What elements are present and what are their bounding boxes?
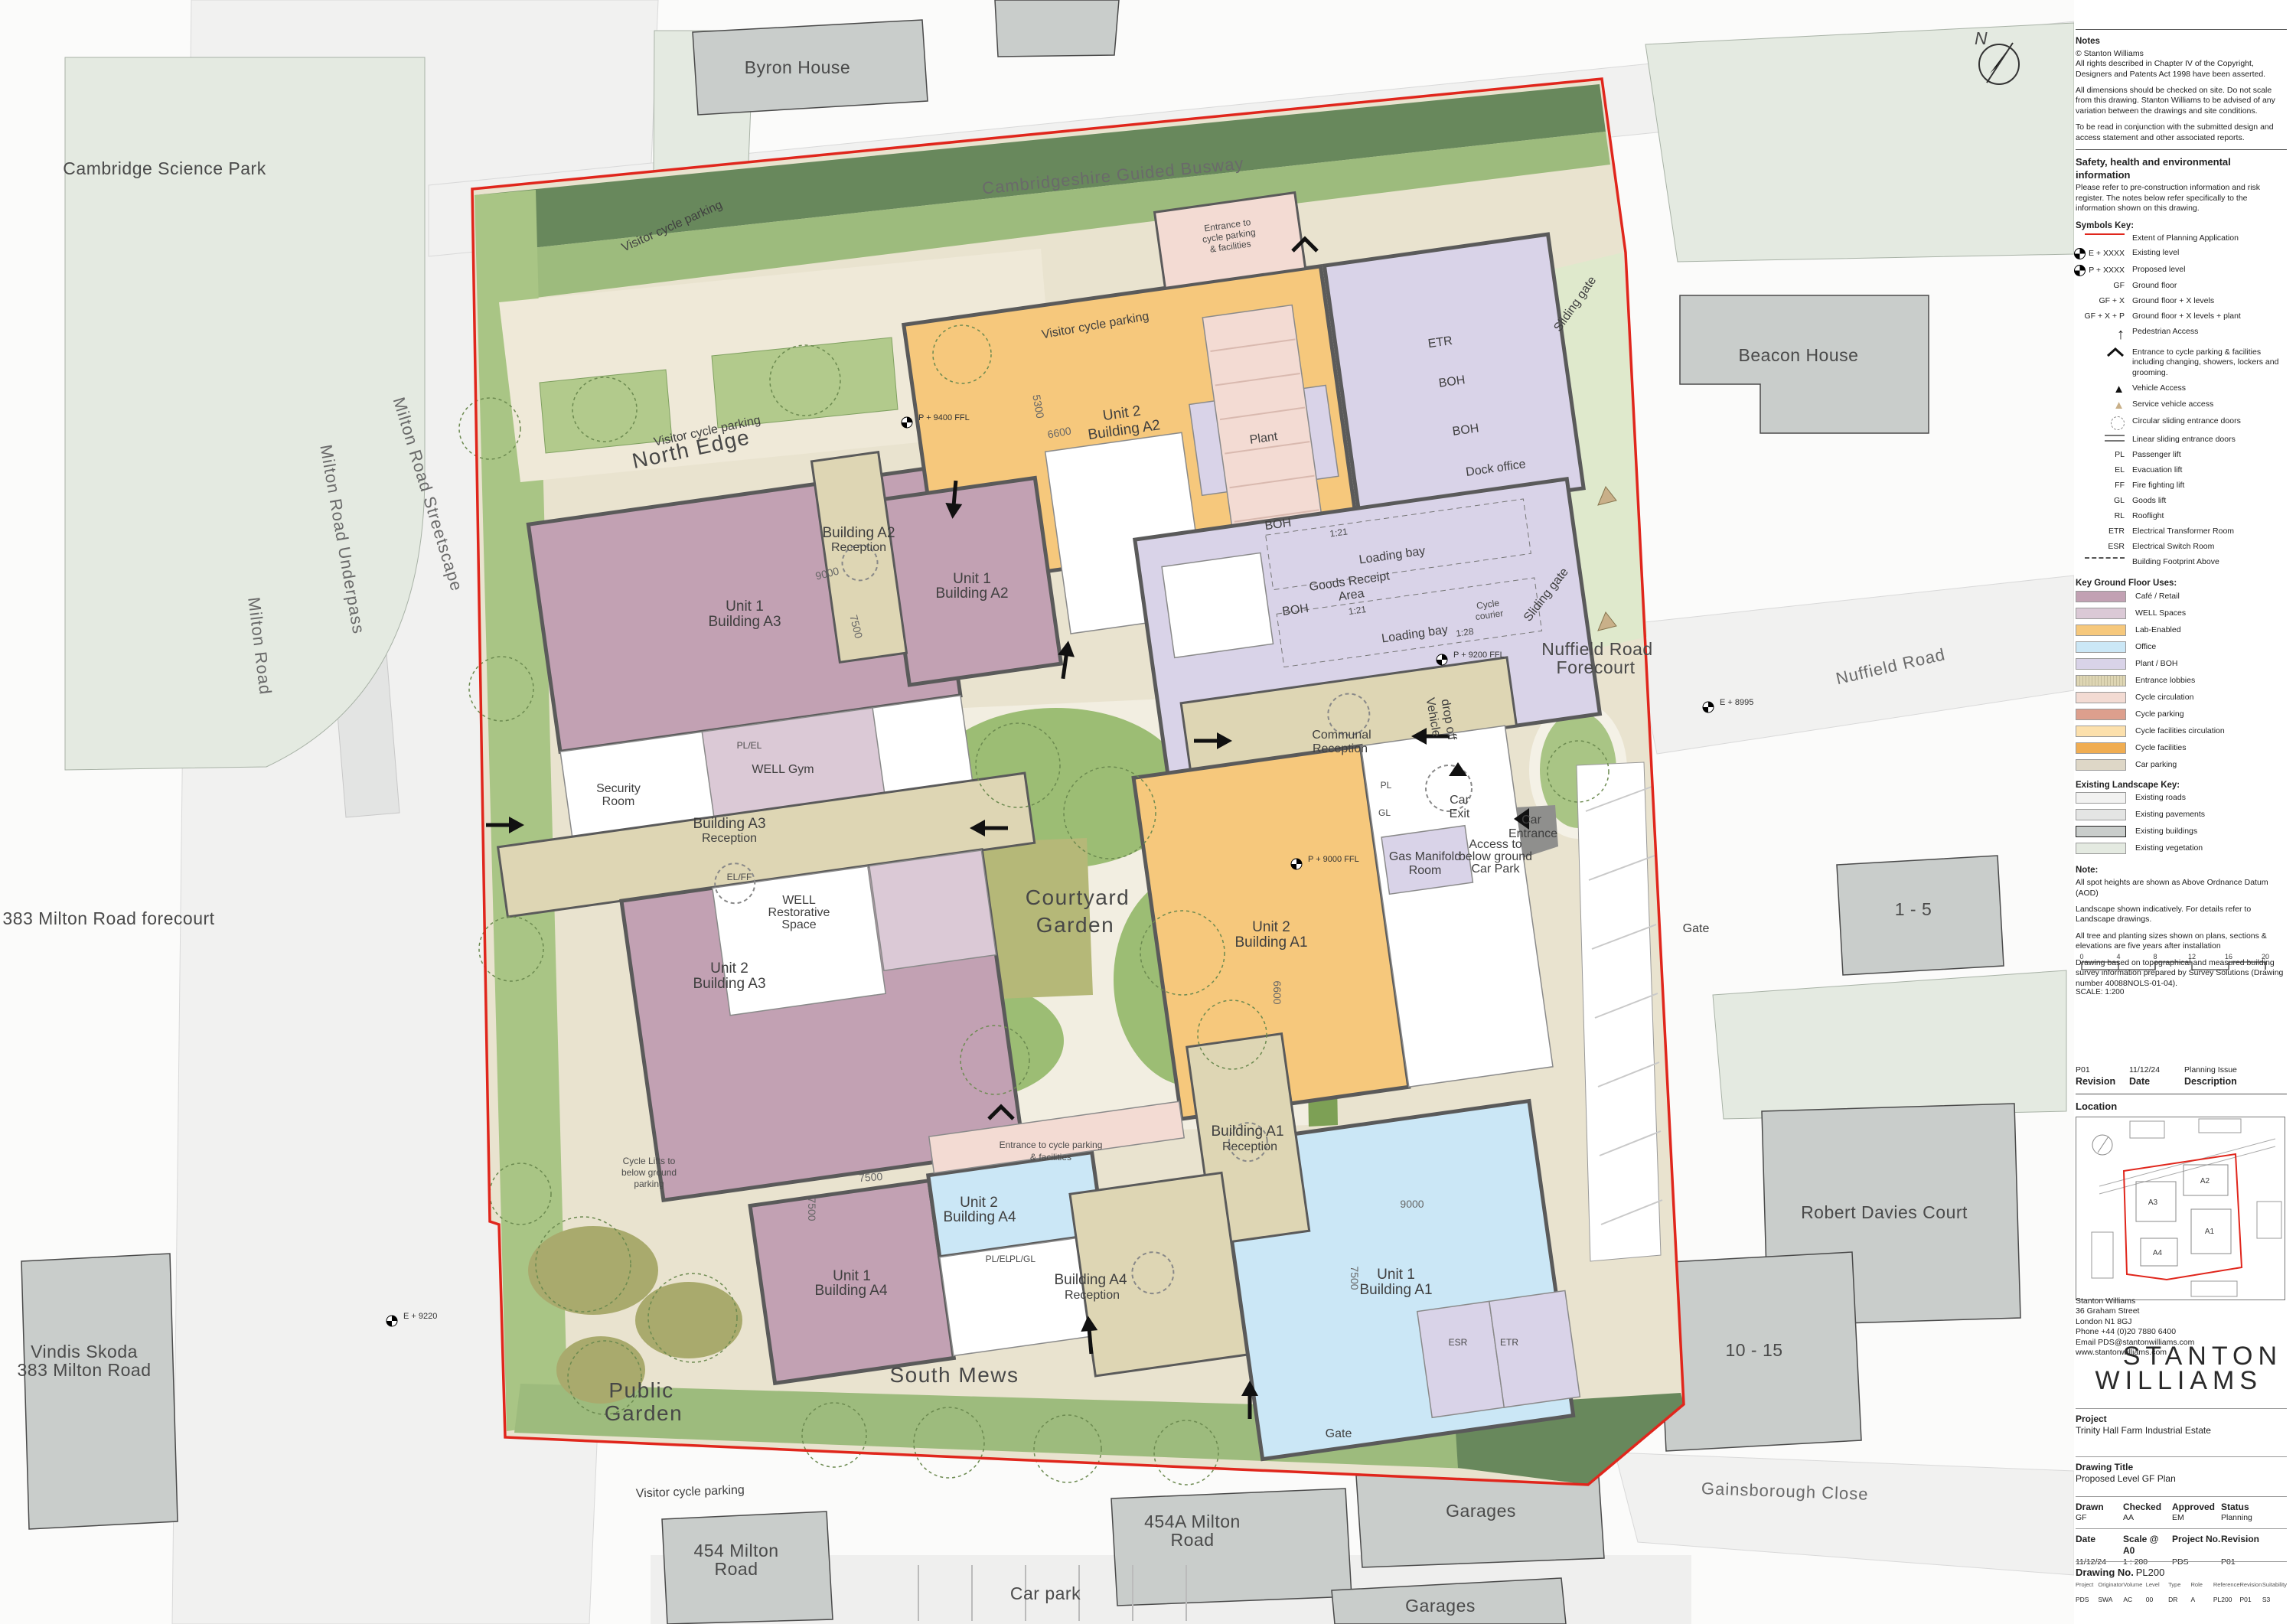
cycle-entrance-chevron-icon <box>2106 347 2125 357</box>
project-block: Project Trinity Hall Farm Industrial Est… <box>2076 1408 2287 1437</box>
landscape-row: Existing vegetation <box>2076 843 2287 854</box>
symbol-row: ▲Service vehicle access <box>2076 399 2287 411</box>
well-restorative-space <box>869 850 996 970</box>
footprint-above-icon <box>2085 557 2125 559</box>
dimension-label: 9000 <box>1400 1198 1424 1210</box>
context-label: Beacon House <box>1739 345 1859 365</box>
planning-boundary-line-icon <box>2085 233 2125 235</box>
symbol-row: Building Footprint Above <box>2076 557 2287 567</box>
lift-label: PL/EL <box>986 1254 1011 1264</box>
use-row: Plant / BOH <box>2076 658 2287 670</box>
she-text: Please refer to pre-construction informa… <box>2076 183 2287 214</box>
revision-table: P01 11/12/24 Planning Issue Revision Dat… <box>2076 1065 2287 1101</box>
unit-label: Unit 1 <box>833 1268 871 1284</box>
symbol-row: ELEvacuation lift <box>2076 465 2287 475</box>
room-label: Reception <box>1313 742 1368 755</box>
drawing-title-block: Drawing Title Proposed Level GF Plan <box>2076 1456 2287 1485</box>
symbol-row: ESRElectrical Switch Room <box>2076 542 2287 552</box>
service-vehicle-access-icon: ▲ <box>2113 399 2125 411</box>
room-label: WELL <box>782 894 816 907</box>
project-name: Trinity Hall Farm Industrial Estate <box>2076 1425 2287 1436</box>
context-label: Robert Davies Court <box>1801 1202 1968 1222</box>
pedestrian-access-icon: ↑ <box>2117 327 2125 342</box>
spot-level: P + 9200 FFL <box>1453 651 1505 660</box>
room-label: & facilities <box>1030 1152 1071 1163</box>
note-para: All tree and planting sizes shown on pla… <box>2076 931 2287 952</box>
drawing-number: Drawing No. PL200 <box>2076 1561 2287 1580</box>
place-label: Forecourt <box>1557 657 1636 677</box>
stanton-williams-logo: STANTON WILLIAMS <box>2076 1344 2282 1394</box>
symbol-row: ↑Pedestrian Access <box>2076 327 2287 342</box>
svg-text:N: N <box>1975 28 1988 48</box>
svg-text:16: 16 <box>2225 953 2232 960</box>
reception-label: Building A3 <box>693 816 765 832</box>
room-label: Gate <box>1683 922 1710 935</box>
room-label: Access to <box>1469 838 1521 851</box>
landscape-key-title: Existing Landscape Key: <box>2076 780 2287 791</box>
lift-label: EL/FF <box>727 872 752 882</box>
unit-label: Unit 2 <box>710 960 748 977</box>
room-label: Room <box>1409 864 1442 877</box>
dimension-label: 6600 <box>1271 980 1283 1004</box>
dimension-label: 7500 <box>806 1197 818 1221</box>
place-label: Garden <box>1036 913 1114 937</box>
lift-label: GL <box>1378 807 1391 818</box>
use-row: Cycle parking <box>2076 709 2287 720</box>
use-row: Office <box>2076 641 2287 653</box>
unit-label: Unit 1 <box>1377 1267 1415 1283</box>
location-title: Location <box>2076 1101 2287 1114</box>
use-row: Cycle facilities <box>2076 742 2287 754</box>
symbol-row: Circular sliding entrance doors <box>2076 416 2287 430</box>
symbols-key-title: Symbols Key: <box>2076 220 2287 232</box>
svg-text:20: 20 <box>2262 953 2269 960</box>
lift-label: PL <box>1381 780 1392 791</box>
symbol-row: GF + X + PGround floor + X levels + plan… <box>2076 311 2287 321</box>
context-label: Vindis Skoda <box>31 1342 138 1361</box>
context-label: 383 Milton Road forecourt <box>2 908 214 928</box>
context-label: Garages <box>1405 1596 1476 1616</box>
symbol-row: GF + XGround floor + X levels <box>2076 296 2287 306</box>
room-label: Space <box>781 918 816 931</box>
existing-level-icon <box>2074 248 2086 259</box>
etr-room <box>1489 1290 1580 1407</box>
room-label: parking <box>634 1179 664 1189</box>
symbol-row: ETRElectrical Transformer Room <box>2076 527 2287 536</box>
uses-key-title: Key Ground Floor Uses: <box>2076 578 2287 589</box>
context-label: Cambridge Science Park <box>63 158 266 178</box>
room-label: Room <box>602 795 635 808</box>
unit-label: Building A1 <box>1359 1282 1432 1298</box>
unit-label: Building A4 <box>943 1209 1016 1225</box>
context-label: Garages <box>1446 1501 1516 1521</box>
reception-label: Building A4 <box>1054 1272 1127 1288</box>
symbol-row: RLRooflight <box>2076 511 2287 521</box>
she-title: Safety, health and environmental informa… <box>2076 156 2287 181</box>
use-row: Lab-Enabled <box>2076 624 2287 636</box>
room-label: Car Park <box>1471 863 1520 876</box>
unit-label: Building A3 <box>708 614 781 630</box>
unit-label: Building A1 <box>1234 934 1307 951</box>
spot-level: P + 9400 FFL <box>918 413 970 422</box>
svg-text:4: 4 <box>2116 953 2120 960</box>
unit-label: Building A3 <box>693 976 765 992</box>
landscape-row: Existing pavements <box>2076 809 2287 820</box>
svg-text:A4: A4 <box>2153 1249 2163 1257</box>
symbol-row: PLPassenger lift <box>2076 450 2287 460</box>
unit-label: Building A2 <box>935 585 1008 602</box>
place-label: Courtyard <box>1026 885 1130 909</box>
title-block-panel: Notes © Stanton Williams All rights desc… <box>2076 0 2287 1624</box>
location-map: Location A3 A2 A1 A4 <box>2076 1101 2287 1303</box>
context-label: 383 Milton Road <box>18 1360 152 1380</box>
proposed-level-icon <box>2074 265 2086 276</box>
context-label: Road <box>715 1559 758 1579</box>
svg-text:A1: A1 <box>2205 1228 2215 1236</box>
use-row: Car parking <box>2076 759 2287 771</box>
use-row: Entrance lobbies <box>2076 675 2287 686</box>
room-label: Cycle Lifts to <box>623 1156 676 1166</box>
reception-label: Reception <box>1222 1140 1277 1153</box>
context-label: 454A Milton <box>1144 1511 1241 1531</box>
spot-level: P + 9000 FFL <box>1308 855 1359 864</box>
unit-label: Unit 1 <box>726 598 764 615</box>
symbol-row: GFGround floor <box>2076 281 2287 291</box>
context-label: Car park <box>1010 1583 1081 1603</box>
reception-label: Reception <box>702 832 757 845</box>
unit-label: Unit 2 <box>1252 919 1290 935</box>
room-label: ESR <box>1449 1337 1468 1348</box>
note-para: Landscape shown indicatively. For detail… <box>2076 905 2287 925</box>
room-label: Car <box>1521 814 1541 827</box>
lift-label: PL/GL <box>1009 1254 1035 1264</box>
use-row: Cycle circulation <box>2076 692 2287 703</box>
room-label: ETR <box>1500 1337 1518 1348</box>
scale-caption: SCALE: 1:200 <box>2076 988 2287 998</box>
context-label: Byron House <box>745 57 850 77</box>
linear-door-icon <box>2105 435 2125 442</box>
circular-door-icon <box>2111 416 2125 430</box>
place-label: Nuffield Road <box>1541 639 1652 659</box>
room-label: Entrance to cycle parking <box>1000 1140 1103 1150</box>
symbol-row: P + XXXXProposed level <box>2076 265 2287 276</box>
room-label: Gate <box>1326 1427 1352 1440</box>
symbol-row: ▲Vehicle Access <box>2076 383 2287 395</box>
drawing-title: Proposed Level GF Plan <box>2076 1473 2287 1485</box>
use-row: WELL Spaces <box>2076 608 2287 619</box>
room-label: Gas Manifold <box>1389 850 1461 863</box>
notes-title: Notes <box>2076 36 2287 47</box>
room-label: Security <box>596 782 641 795</box>
reception-label: Building A1 <box>1211 1123 1283 1140</box>
context-label: Road <box>1171 1530 1215 1550</box>
notes-para: To be read in conjunction with the submi… <box>2076 122 2287 143</box>
room-label: Restorative <box>768 906 830 919</box>
room-label: below ground <box>621 1167 677 1178</box>
room-label: Communal <box>1312 729 1371 742</box>
context-label: 454 Milton <box>693 1541 778 1560</box>
vehicle-access-icon: ▲ <box>2113 383 2125 395</box>
symbol-row: Extent of Planning Application <box>2076 233 2287 243</box>
note-para: All spot heights are shown as Above Ordn… <box>2076 878 2287 898</box>
context-label: 10 - 15 <box>1725 1340 1782 1360</box>
notes-para: © Stanton Williams All rights described … <box>2076 49 2287 80</box>
document-codes: ProjectPDS OriginatorSWA VolumeAC Level0… <box>2076 1581 2287 1603</box>
notes-para: All dimensions should be checked on site… <box>2076 86 2287 116</box>
svg-text:0: 0 <box>2079 953 2083 960</box>
meta-table: DrawnCheckedApprovedStatus GFAAEMPlannin… <box>2076 1496 2287 1571</box>
svg-text:A2: A2 <box>2200 1177 2210 1185</box>
unit-label: Unit 2 <box>960 1195 998 1211</box>
symbol-row: Entrance to cycle parking & facilities i… <box>2076 347 2287 378</box>
symbol-row: GLGoods lift <box>2076 496 2287 506</box>
room-label: below ground <box>1459 850 1532 863</box>
context-label: 1 - 5 <box>1895 899 1932 919</box>
unit-label: Unit 1 <box>953 571 991 587</box>
dimension-label: 7500 <box>859 1170 883 1184</box>
symbol-row: Linear sliding entrance doors <box>2076 435 2287 445</box>
use-row: Café / Retail <box>2076 591 2287 602</box>
reception-label: Reception <box>831 541 886 554</box>
svg-text:8: 8 <box>2153 953 2157 960</box>
reception-label: Reception <box>1065 1289 1120 1302</box>
site-plan: Unit 2 Building A2 ETR BOH BOH BOH BOH D… <box>0 0 2074 1624</box>
scale-bar: 0 4 8 12 16 20 SCALE: 1:200 <box>2076 951 2287 998</box>
room-label: Car <box>1450 794 1469 807</box>
place-label: Public <box>608 1378 673 1402</box>
landscape-row: Existing buildings <box>2076 826 2287 837</box>
unit-label: Building A4 <box>814 1283 888 1299</box>
dimension-label: 7500 <box>1349 1266 1361 1290</box>
svg-text:12: 12 <box>2188 953 2196 960</box>
svg-text:A3: A3 <box>2148 1198 2158 1207</box>
place-label: Garden <box>605 1401 683 1425</box>
place-label: South Mews <box>889 1363 1019 1387</box>
drawing-sheet: Unit 2 Building A2 ETR BOH BOH BOH BOH D… <box>0 0 2296 1624</box>
lift-label: PL/EL <box>737 740 762 751</box>
reception-label: Building A2 <box>822 525 895 541</box>
room-label: Exit <box>1450 807 1470 820</box>
symbol-row: FFFire fighting lift <box>2076 481 2287 491</box>
symbol-row: E + XXXXExisting level <box>2076 248 2287 259</box>
note-title: Note: <box>2076 865 2287 876</box>
landscape-row: Existing roads <box>2076 792 2287 804</box>
spot-level: E + 9220 <box>403 1312 437 1321</box>
room-label: WELL Gym <box>752 763 814 776</box>
spot-level: E + 8995 <box>1720 698 1753 707</box>
use-row: Cycle facilities circulation <box>2076 726 2287 737</box>
